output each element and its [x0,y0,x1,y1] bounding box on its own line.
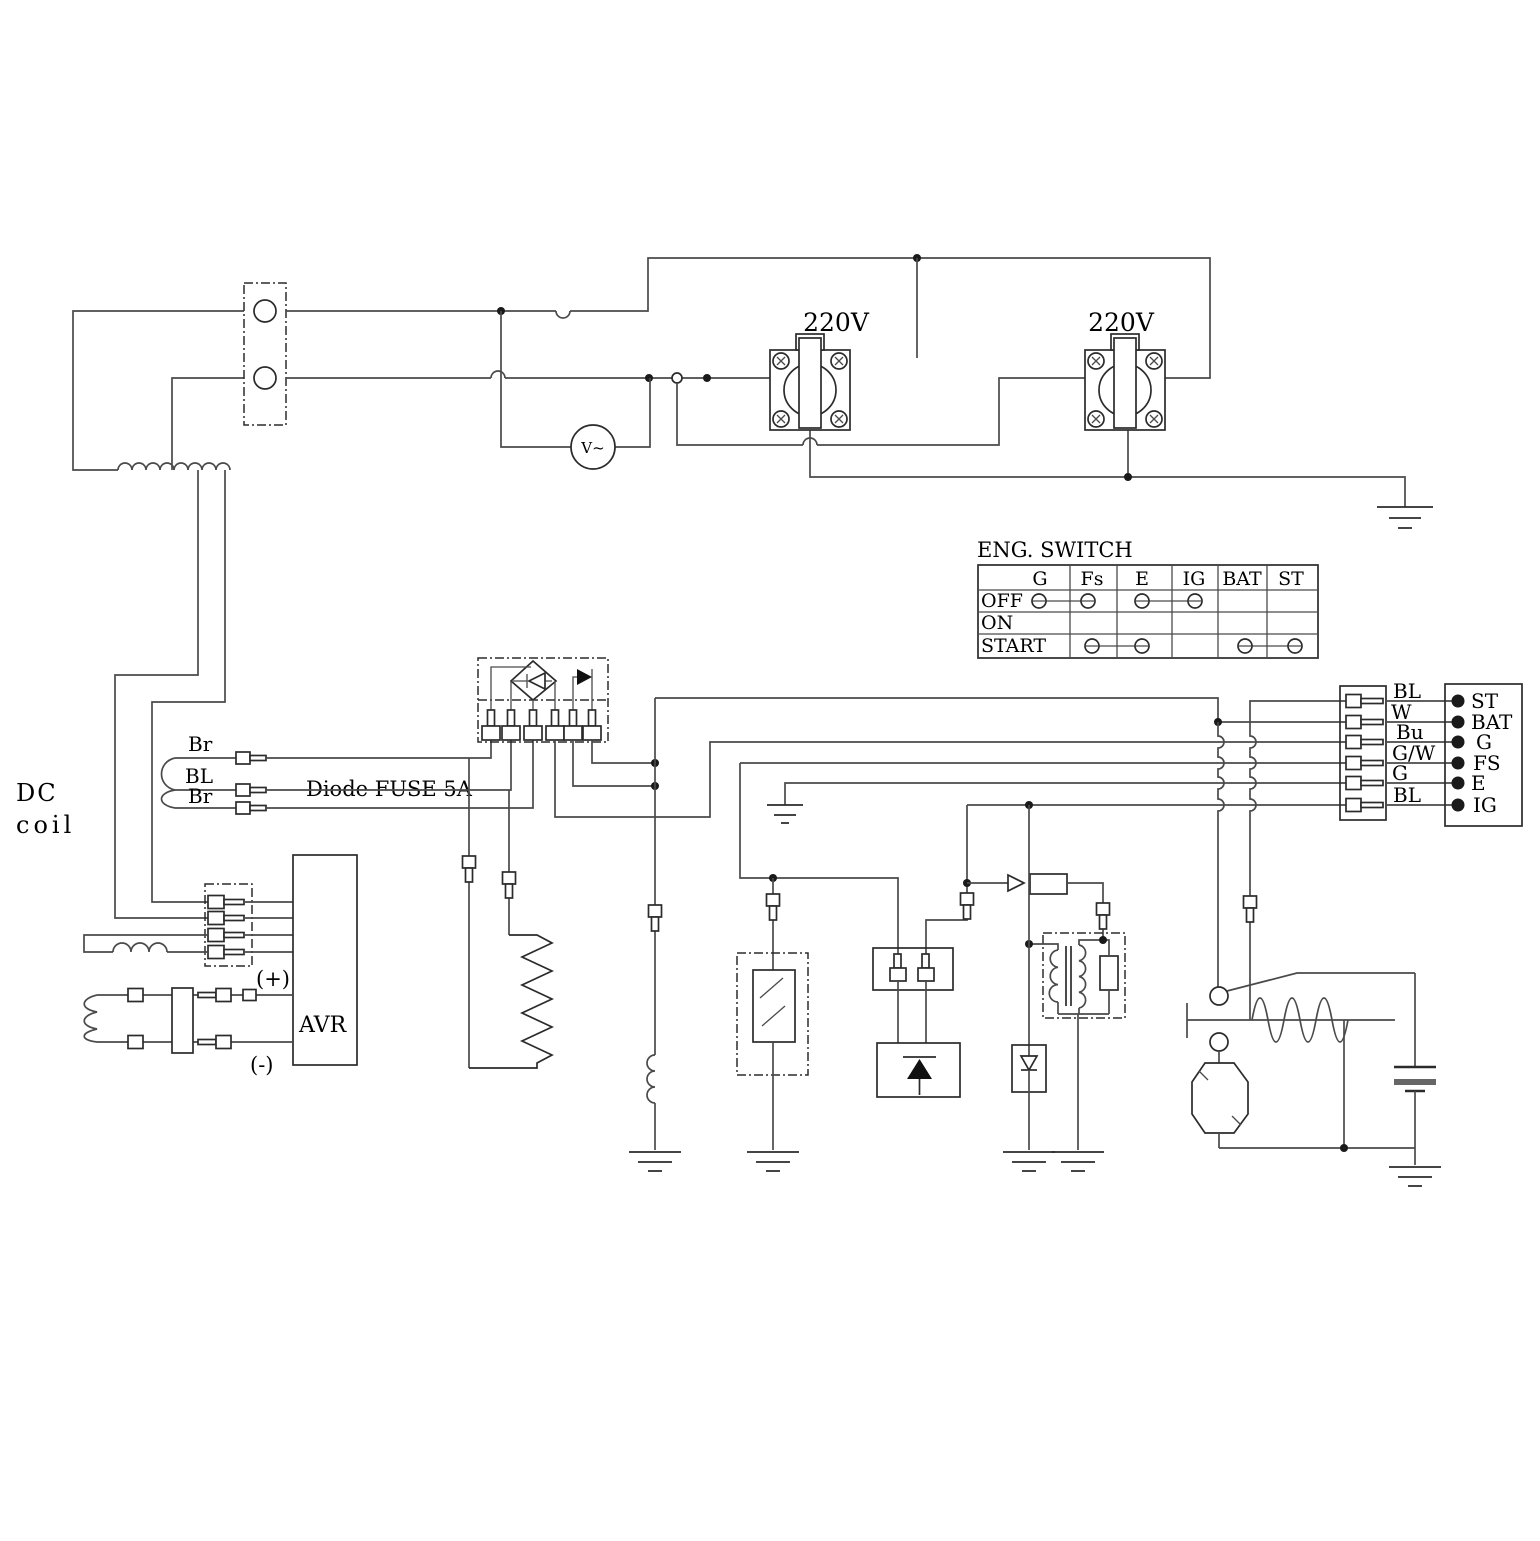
background [0,0,1540,1541]
avr-positive-label: (+) [256,967,290,991]
power-outlet-right-icon: 220V [1085,308,1165,430]
col-fs: Fs [1081,568,1104,590]
diagram-canvas: V~ 220V 220V ENG. SWITCH [0,0,1540,1541]
outlet-left-label: 220V [803,308,870,337]
dc-coil-caption-1: DC [16,779,58,807]
avr-box-icon: AVR [293,855,357,1065]
row-start: START [981,635,1046,657]
wiring-diagram: V~ 220V 220V ENG. SWITCH [0,0,1540,1541]
wire-label-br-top: Br [188,732,213,756]
diode-fuse-label: Diode FUSE 5A [306,777,473,801]
voltmeter-label: V~ [580,439,604,457]
wire-label-br-bottom: Br [188,784,213,808]
outlet-right-label: 220V [1088,308,1155,337]
col-bat: BAT [1222,568,1262,590]
harness-label-bl2: BL [1393,783,1421,807]
row-off: OFF [981,590,1023,612]
col-st: ST [1278,568,1304,590]
col-g: G [1032,568,1047,590]
avr-negative-label: (-) [250,1053,273,1077]
row-on: ON [981,612,1013,634]
eng-switch-title: ENG. SWITCH [977,538,1133,562]
terminal-ig: IG [1473,793,1497,817]
dc-coil-caption-2: coil [16,811,75,839]
harness-label-g: G [1392,761,1408,785]
avr-label: AVR [298,1013,348,1038]
terminal-e: E [1471,771,1486,795]
col-e: E [1135,568,1149,590]
field-fuse-icon [172,988,193,1053]
col-ig: IG [1183,568,1206,590]
